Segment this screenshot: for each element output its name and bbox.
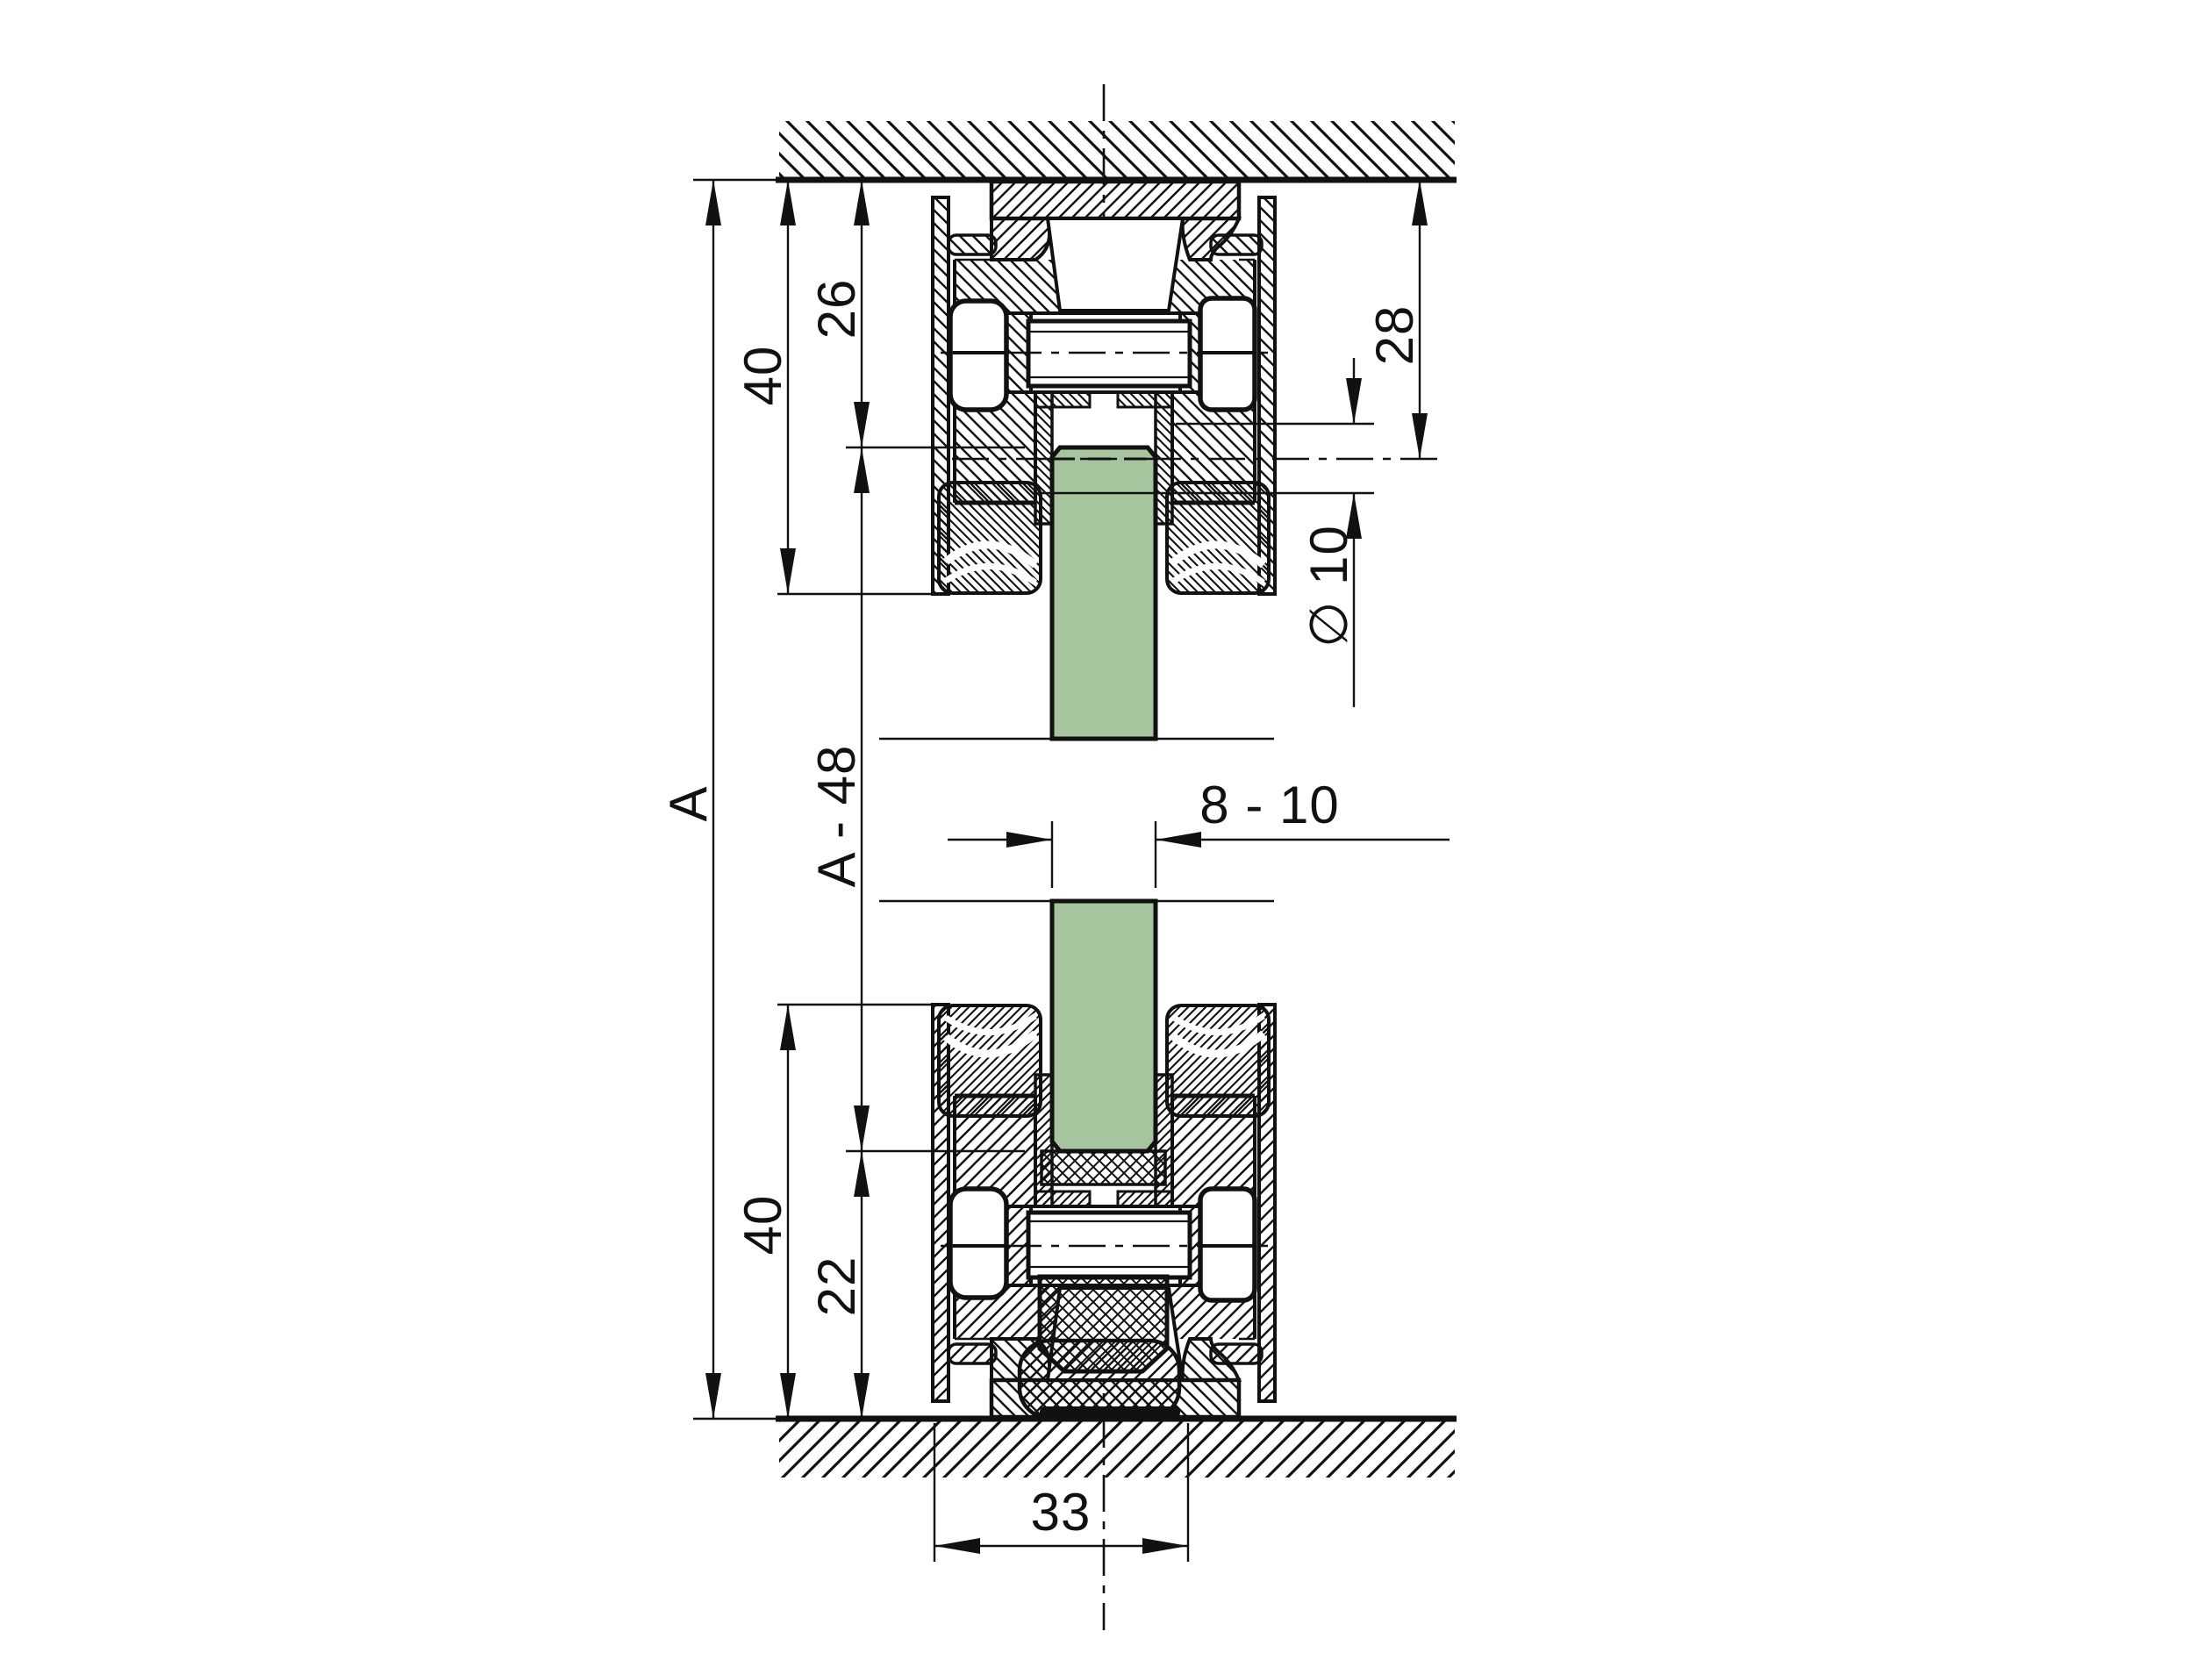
dim-label-top-glass-inset: 26	[807, 279, 866, 340]
floor-anchor-dome	[1020, 1341, 1179, 1418]
glass-panel-lower	[1052, 901, 1156, 1151]
dim-label-bottom-profile-height: 40	[734, 1195, 792, 1256]
technical-drawing-page: A 40 26 A - 48 22	[0, 0, 2212, 1660]
dim-top-glass-inset: 26	[807, 180, 870, 447]
dim-label-pin-diameter: ∅ 10	[1299, 525, 1358, 648]
dim-bottom-glass-inset: 22	[807, 1151, 870, 1419]
dim-glass-thickness: 8 - 10	[948, 776, 1450, 888]
dim-label-bottom-glass-inset: 22	[807, 1256, 866, 1317]
dim-pin-diameter: ∅ 10	[1299, 358, 1362, 707]
floor-seal-strip	[1040, 1406, 1180, 1418]
dim-label-profile-width: 33	[1031, 1483, 1092, 1542]
ceiling-surface	[776, 121, 1457, 180]
dim-label-glass-length: A - 48	[807, 745, 866, 888]
dim-label-ceiling-to-pin-axis: 28	[1365, 305, 1424, 366]
dim-overall-height: A	[659, 180, 721, 1419]
dim-label-top-profile-height: 40	[734, 346, 792, 406]
dim-label-glass-thickness: 8 - 10	[1199, 776, 1339, 834]
dim-bottom-profile-height: 40	[734, 1005, 796, 1419]
glass-clamp-section-drawing: A 40 26 A - 48 22	[0, 0, 2212, 1660]
dim-glass-length: A - 48	[807, 447, 870, 1151]
glass-panel-upper	[1052, 447, 1156, 739]
floor-surface	[776, 1419, 1457, 1478]
bolt-head	[950, 301, 1006, 410]
dim-ceiling-to-pin-axis: 28	[1365, 180, 1428, 459]
dim-label-overall-height: A	[659, 785, 718, 821]
glass-setting-block	[1042, 1151, 1165, 1184]
dim-top-profile-height: 40	[734, 180, 796, 594]
